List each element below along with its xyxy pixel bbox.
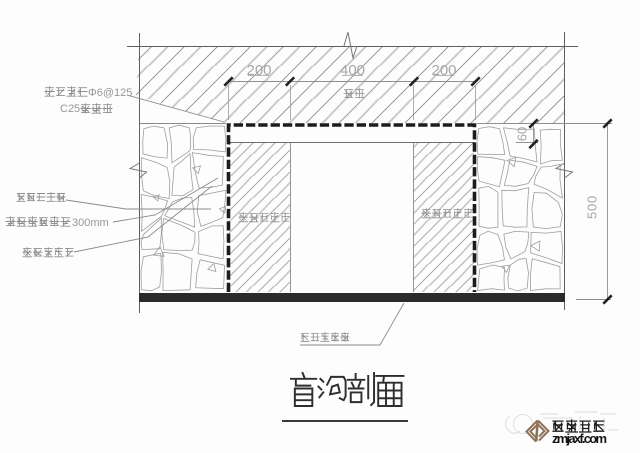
svg-text:200: 200	[431, 62, 456, 79]
svg-text:300mm: 300mm	[72, 217, 109, 229]
svg-text:Φ6@125: Φ6@125	[88, 87, 132, 99]
svg-text:400: 400	[340, 62, 365, 79]
svg-text:500: 500	[585, 195, 600, 219]
svg-text:C25: C25	[60, 103, 80, 115]
svg-text:zmjaxf.com: zmjaxf.com	[552, 431, 607, 446]
svg-text:60: 60	[515, 127, 530, 141]
svg-text:200: 200	[246, 62, 271, 79]
